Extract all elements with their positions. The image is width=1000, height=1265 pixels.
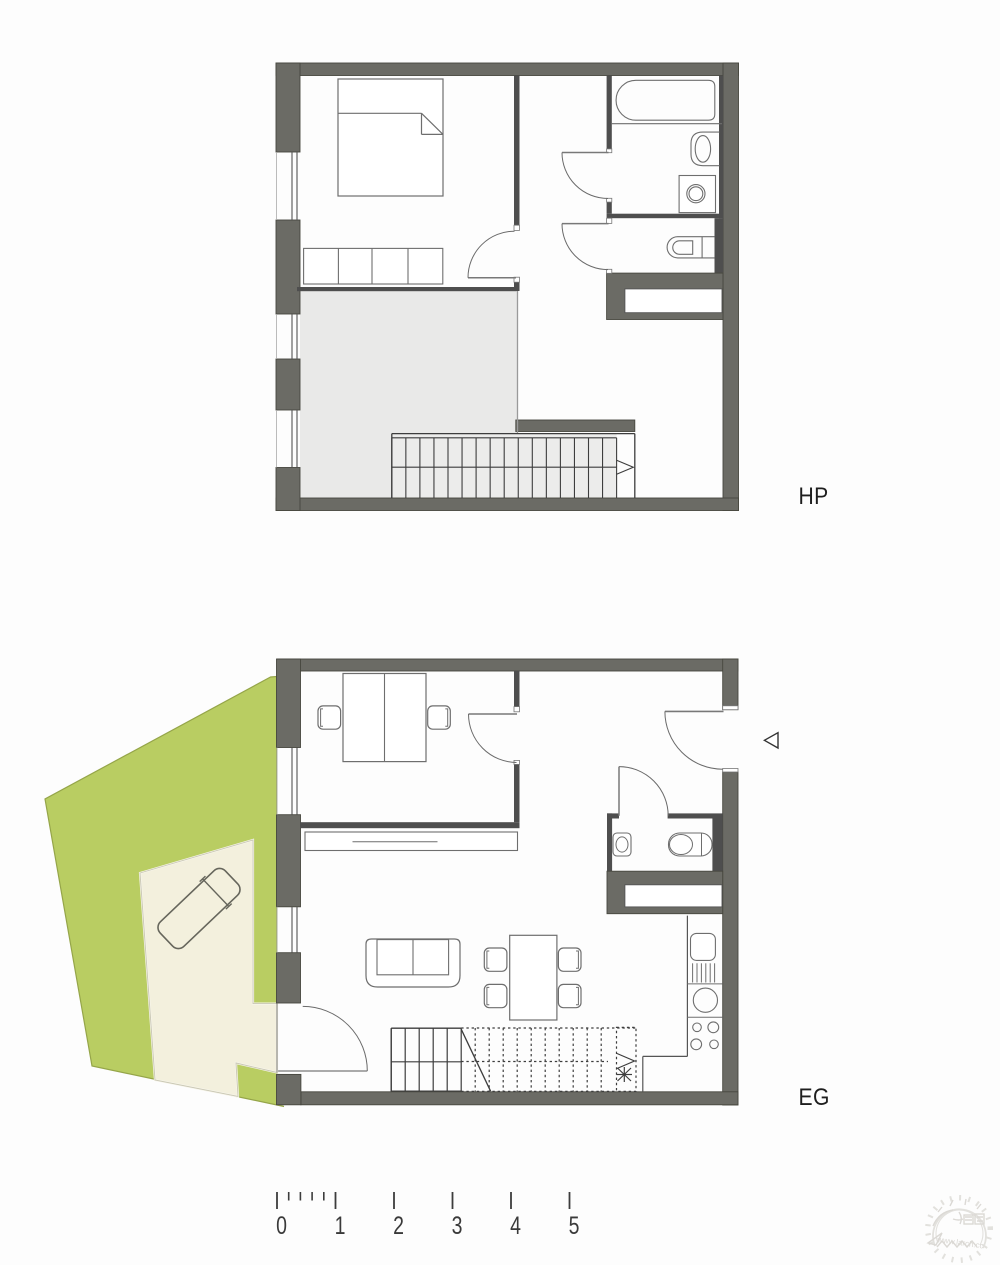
svg-text:4: 4 — [510, 1212, 521, 1240]
svg-text:5: 5 — [569, 1212, 580, 1240]
svg-text:1: 1 — [335, 1212, 346, 1240]
svg-text:2: 2 — [393, 1212, 404, 1240]
svg-text:3: 3 — [452, 1212, 463, 1240]
svg-text:0: 0 — [276, 1212, 287, 1240]
svg-text:EG: EG — [798, 1084, 829, 1111]
svg-text:HP: HP — [798, 483, 828, 510]
